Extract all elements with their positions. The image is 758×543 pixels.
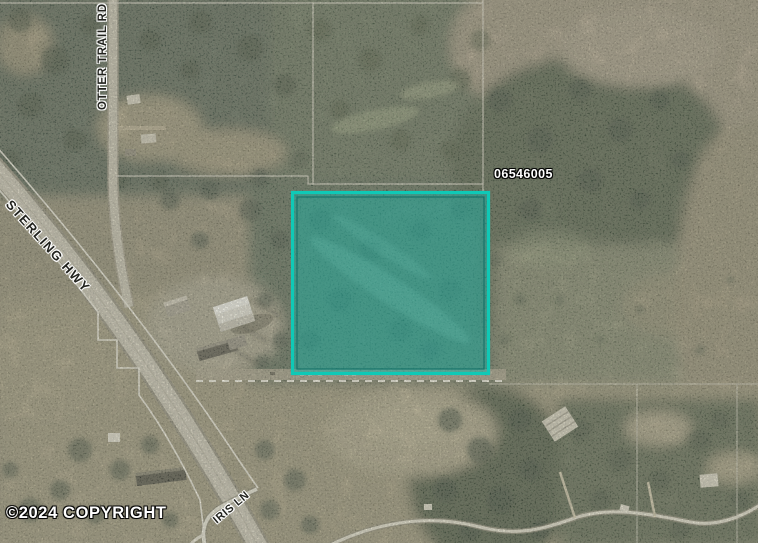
satellite-imagery <box>0 0 758 543</box>
copyright-label: ©2024 COPYRIGHT <box>6 504 167 523</box>
parcel-highlight[interactable] <box>293 193 489 374</box>
parcel-id-label: 06546005 <box>494 167 553 181</box>
satellite-map[interactable]: STERLING HWY OTTER TRAIL RD IRIS LN 0654… <box>0 0 758 543</box>
parcel-fill[interactable] <box>293 193 489 374</box>
road-label-otter-trail-rd: OTTER TRAIL RD <box>97 3 109 110</box>
